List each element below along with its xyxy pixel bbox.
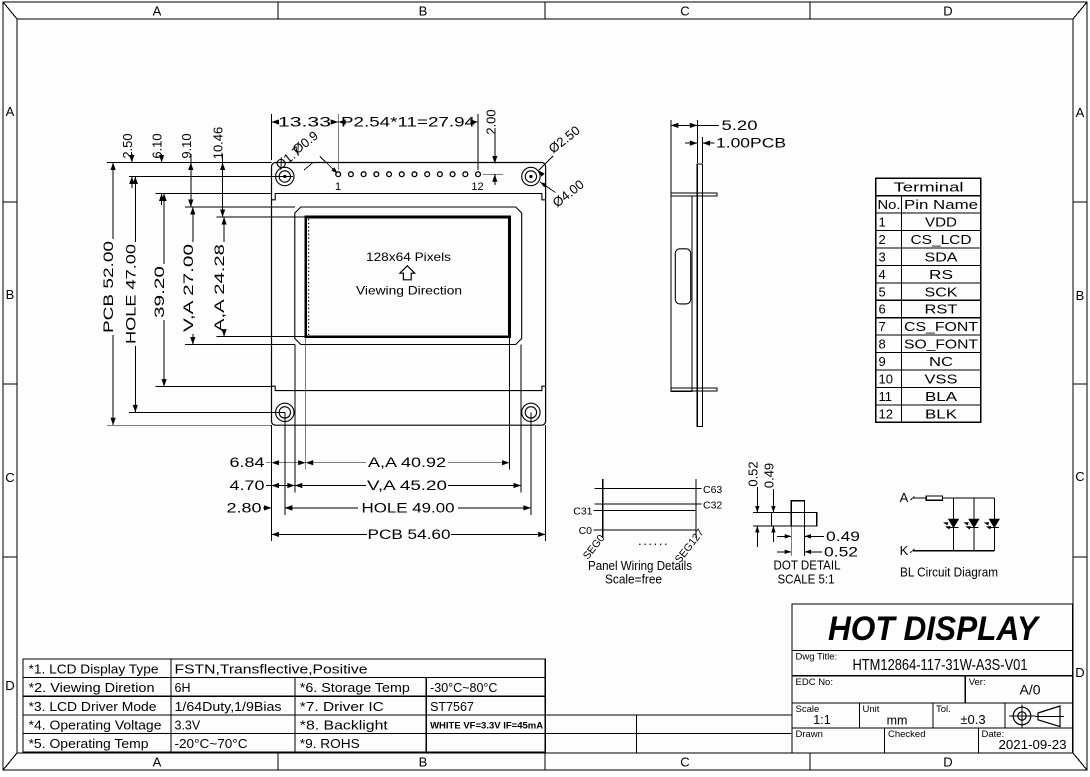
svg-text:128x64 Pixels: 128x64 Pixels — [366, 250, 451, 264]
svg-text:*5. Operating Temp: *5. Operating Temp — [29, 737, 149, 751]
svg-text:Pin Name: Pin Name — [904, 197, 978, 212]
svg-text:2: 2 — [879, 232, 886, 247]
svg-text:7: 7 — [879, 319, 886, 334]
svg-text:D: D — [5, 678, 14, 693]
svg-text:CS_LCD: CS_LCD — [911, 232, 972, 247]
svg-text:RST: RST — [925, 302, 958, 317]
svg-text:K: K — [900, 543, 909, 558]
svg-text:VSS: VSS — [925, 371, 958, 386]
svg-text:11: 11 — [879, 389, 893, 404]
svg-text:BLA: BLA — [925, 389, 957, 404]
svg-text:0.52: 0.52 — [745, 461, 760, 486]
svg-text:13.33: 13.33 — [278, 115, 331, 130]
svg-text:Scale=free: Scale=free — [605, 573, 662, 587]
svg-text:9.10: 9.10 — [179, 133, 194, 158]
svg-text:C32: C32 — [703, 499, 722, 511]
svg-text:A: A — [153, 755, 162, 770]
svg-text:0.52: 0.52 — [824, 544, 858, 559]
svg-text:1: 1 — [879, 215, 886, 230]
svg-text:mm: mm — [887, 713, 908, 727]
svg-text:SCALE 5:1: SCALE 5:1 — [778, 572, 835, 586]
svg-text:CS_FONT: CS_FONT — [904, 319, 978, 334]
svg-text:C31: C31 — [573, 506, 592, 518]
svg-text:A: A — [6, 104, 15, 119]
svg-text:ST7567: ST7567 — [430, 700, 474, 714]
svg-text:6: 6 — [879, 302, 886, 317]
svg-text:Ø4.00: Ø4.00 — [550, 177, 587, 211]
svg-text:B: B — [6, 287, 15, 302]
svg-text:*6. Storage Temp: *6. Storage Temp — [300, 681, 410, 695]
svg-text:-20°C~70°C: -20°C~70°C — [175, 737, 248, 751]
svg-text:0.49: 0.49 — [826, 529, 860, 544]
svg-text:5.20: 5.20 — [722, 118, 758, 133]
svg-text:PCB 54.60: PCB 54.60 — [368, 527, 451, 542]
svg-text:1.00PCB: 1.00PCB — [716, 136, 786, 151]
svg-text:SO_FONT: SO_FONT — [904, 337, 978, 352]
svg-text:B: B — [1076, 288, 1085, 303]
svg-text:C: C — [1075, 469, 1084, 484]
svg-text:2.00: 2.00 — [484, 109, 499, 134]
svg-text:C0: C0 — [579, 525, 593, 537]
svg-text:VDD: VDD — [925, 215, 957, 230]
svg-text:HOT DISPLAY: HOT DISPLAY — [828, 610, 1041, 648]
svg-text:Viewing Direction: Viewing Direction — [356, 284, 462, 298]
svg-text:C: C — [680, 755, 689, 770]
svg-text:*4. Operating Voltage: *4. Operating Voltage — [29, 718, 162, 732]
svg-text:DOT DETAIL: DOT DETAIL — [774, 558, 841, 572]
svg-text:D: D — [943, 755, 952, 770]
svg-text:A,A 24.28: A,A 24.28 — [212, 244, 227, 332]
svg-text:9: 9 — [879, 354, 886, 369]
svg-text:Checked: Checked — [888, 729, 926, 740]
svg-text:D: D — [943, 4, 952, 19]
svg-text:Ø2.50: Ø2.50 — [546, 123, 583, 157]
svg-text:HOLE 47.00: HOLE 47.00 — [123, 244, 138, 344]
svg-text:RS: RS — [929, 267, 953, 282]
svg-text:V,A 27.00: V,A 27.00 — [181, 244, 196, 332]
svg-text:SCK: SCK — [925, 284, 958, 299]
svg-text:Drawn: Drawn — [796, 729, 823, 740]
svg-text:2.80: 2.80 — [227, 500, 262, 515]
svg-text:A,A 40.92: A,A 40.92 — [368, 455, 446, 470]
svg-text:B: B — [419, 4, 428, 19]
svg-text:D: D — [1075, 665, 1084, 680]
svg-text:12: 12 — [471, 181, 483, 193]
svg-text:EDC No:: EDC No: — [796, 677, 833, 688]
svg-text:V,A 45.20: V,A 45.20 — [367, 478, 447, 493]
svg-text:5: 5 — [879, 284, 886, 299]
svg-text:P2.54*11=27.94: P2.54*11=27.94 — [341, 115, 476, 130]
svg-text:39.20: 39.20 — [152, 266, 167, 318]
svg-text:C63: C63 — [703, 484, 722, 496]
svg-text:B: B — [419, 755, 428, 770]
svg-text:2021-09-23: 2021-09-23 — [999, 738, 1067, 752]
svg-text:6.84: 6.84 — [230, 455, 266, 470]
svg-text:Dwg Title:: Dwg Title: — [796, 652, 838, 663]
svg-text:HTM12864-117-31W-A3S-V01: HTM12864-117-31W-A3S-V01 — [853, 657, 1028, 674]
svg-text:*7. Driver IC: *7. Driver IC — [300, 700, 384, 714]
svg-text:Panel Wiring Details: Panel Wiring Details — [588, 559, 692, 573]
svg-text:No.: No. — [878, 197, 901, 212]
svg-text:4: 4 — [879, 267, 886, 282]
svg-text:10.46: 10.46 — [211, 127, 226, 160]
svg-text:*8. Backlight: *8. Backlight — [300, 718, 389, 732]
svg-text:WHITE VF=3.3V IF=45mA: WHITE VF=3.3V IF=45mA — [430, 720, 544, 730]
svg-text:*9. ROHS: *9. ROHS — [300, 737, 360, 751]
svg-text:*2. Viewing Diretion: *2. Viewing Diretion — [29, 681, 155, 695]
svg-text:3.3V: 3.3V — [175, 718, 201, 732]
svg-text:3: 3 — [879, 249, 886, 264]
svg-text:6.10: 6.10 — [150, 133, 165, 158]
svg-text:C: C — [680, 4, 689, 19]
svg-text:A/0: A/0 — [1019, 682, 1040, 698]
svg-text:BL Circuit Diagram: BL Circuit Diagram — [900, 565, 998, 579]
svg-text:-30°C~80°C: -30°C~80°C — [430, 681, 497, 695]
svg-text:A: A — [900, 490, 909, 505]
svg-text:A: A — [1076, 105, 1085, 120]
svg-text:1: 1 — [335, 181, 341, 193]
svg-text:SDA: SDA — [925, 249, 958, 264]
svg-text:Unit: Unit — [863, 704, 880, 715]
svg-text:C: C — [5, 470, 14, 485]
svg-text:12: 12 — [879, 406, 893, 421]
svg-text:HOLE 49.00: HOLE 49.00 — [362, 500, 455, 515]
svg-text:±0.3: ±0.3 — [960, 712, 985, 727]
svg-text:10: 10 — [879, 371, 893, 386]
svg-text:8: 8 — [879, 337, 886, 352]
svg-text:Terminal: Terminal — [894, 180, 964, 195]
svg-text:Tol.: Tol. — [936, 704, 951, 715]
svg-text:FSTN,Transflective,Positive: FSTN,Transflective,Positive — [175, 663, 368, 677]
svg-text:......: ...... — [638, 533, 669, 548]
svg-text:*1. LCD Display Type: *1. LCD Display Type — [29, 663, 159, 677]
svg-text:1/64Duty,1/9Bias: 1/64Duty,1/9Bias — [175, 700, 282, 714]
svg-text:PCB 52.00: PCB 52.00 — [101, 241, 116, 333]
svg-text:*3. LCD Driver Mode: *3. LCD Driver Mode — [29, 700, 157, 714]
svg-text:4.70: 4.70 — [230, 478, 265, 493]
svg-text:NC: NC — [929, 354, 953, 369]
svg-text:A: A — [153, 4, 162, 19]
svg-text:Ver:: Ver: — [969, 677, 986, 688]
svg-text:BLK: BLK — [925, 406, 957, 421]
svg-text:6H: 6H — [175, 681, 191, 695]
svg-text:2.50: 2.50 — [120, 133, 135, 158]
svg-text:1:1: 1:1 — [813, 713, 830, 727]
svg-text:0.49: 0.49 — [761, 463, 776, 488]
